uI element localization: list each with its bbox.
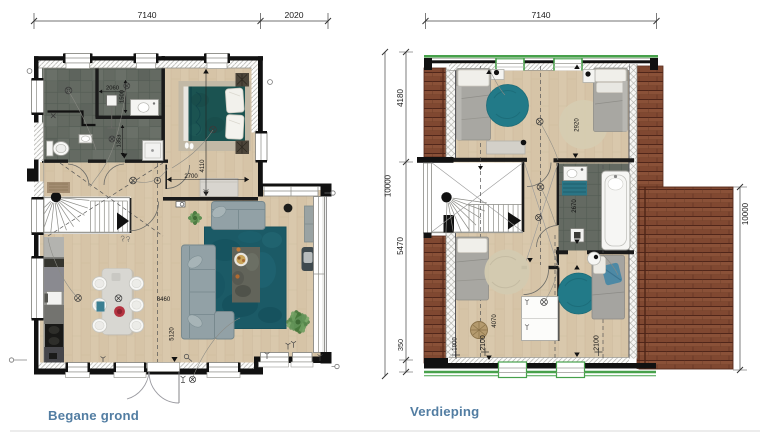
svg-text:8460: 8460 bbox=[157, 297, 171, 303]
svg-text:350: 350 bbox=[396, 339, 405, 351]
svg-text:Verdieping: Verdieping bbox=[410, 404, 479, 419]
svg-text:1000: 1000 bbox=[453, 337, 459, 351]
svg-text:4110: 4110 bbox=[200, 159, 206, 173]
svg-text:2920: 2920 bbox=[575, 118, 581, 132]
svg-text:2700: 2700 bbox=[184, 174, 198, 180]
svg-text:5120: 5120 bbox=[170, 327, 176, 341]
svg-text:Begane grond: Begane grond bbox=[48, 408, 139, 423]
svg-text:2060: 2060 bbox=[106, 86, 119, 92]
svg-text:7140: 7140 bbox=[137, 10, 156, 20]
svg-text:7140: 7140 bbox=[531, 10, 550, 20]
svg-text:1353: 1353 bbox=[117, 135, 123, 148]
svg-text:4180: 4180 bbox=[396, 89, 405, 107]
svg-text:2670: 2670 bbox=[572, 199, 578, 213]
svg-text:5470: 5470 bbox=[396, 237, 405, 255]
svg-text:1500: 1500 bbox=[120, 90, 126, 103]
svg-text:10000: 10000 bbox=[741, 202, 750, 225]
svg-text:2020: 2020 bbox=[284, 10, 303, 20]
svg-text:2100: 2100 bbox=[480, 335, 487, 351]
svg-text:10000: 10000 bbox=[384, 174, 393, 197]
svg-text:4070: 4070 bbox=[492, 314, 498, 328]
svg-text:2100: 2100 bbox=[594, 335, 601, 351]
